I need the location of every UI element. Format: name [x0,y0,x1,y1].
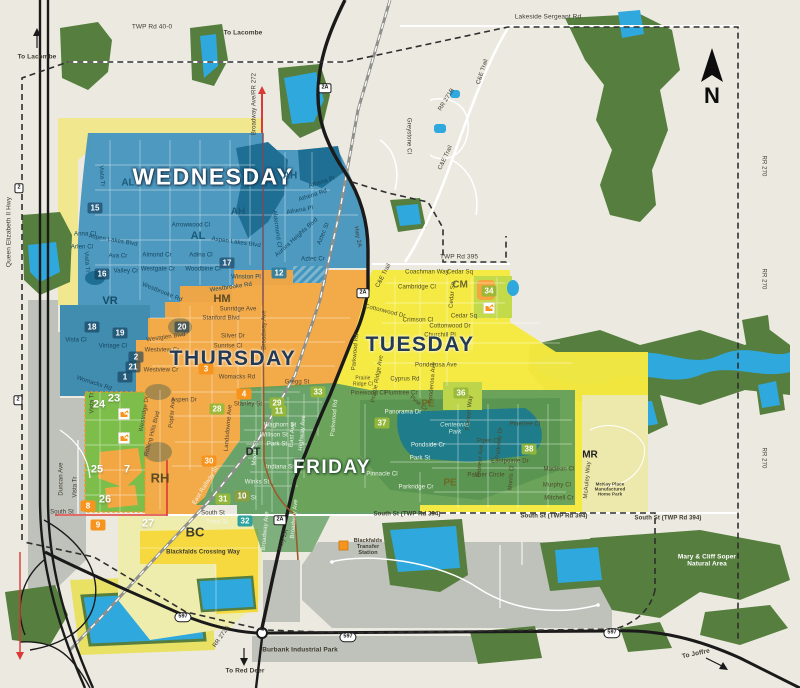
road-label: RR 270 [760,156,767,177]
road-label: RR 271B [438,88,457,113]
road-label: Westglen Blvd [146,332,186,344]
zone-number-badge: 7 [120,464,135,475]
road-label: Vista Cl [65,338,86,345]
zone-number-badge: 3 [199,364,214,375]
zone-number-badge: 9 [91,520,106,531]
road-label: C&E Trail [437,145,454,172]
zone-number-badge: 11 [272,406,287,417]
road-label: Stanford Blvd [202,316,239,323]
road-label: Arlen Cl [71,245,93,252]
zone-number-badge: 18 [85,322,100,333]
road-label: Pioneer Way [465,395,475,431]
road-label: Cedar Sq [447,270,473,277]
road-label: Morris Cl [508,465,517,490]
road-label: Panorama Dr [385,410,422,417]
neighborhood-code: AL [191,230,206,242]
road-label: Landsdowne Ave [224,404,235,451]
road-label: Vista Tr [90,392,97,413]
zone-number-badge: 8 [81,501,96,512]
zone-number-badge: 16 [95,269,110,280]
zone-number-badge: 36 [454,388,469,399]
neighborhood-code: PE [443,478,456,489]
highway-shield: 597 [603,628,620,638]
road-label: Blackfalds Crossing Way [166,550,240,557]
road-label: Cedar Sq [449,282,458,309]
road-label: Crimson Cl [403,318,434,325]
road-label: Coachman Way [405,270,449,277]
zone-number-badge: 28 [210,404,225,415]
road-label: Pinetree Cl [510,422,541,429]
zone-number-badge: 21 [126,362,141,373]
road-label: Winston Pl [231,275,261,282]
road-label: Parkridge Cr [399,485,434,492]
road-label: Duncan Ave [59,462,66,495]
road-label: South St (TWP Rd 394) [521,514,588,521]
road-label: Aztec St [317,222,332,246]
road-label: Eastpointe Dr [491,459,529,466]
road-label: Broadway Ave/RR 272 [252,73,259,135]
road-label: Athena Pl [286,205,314,216]
poi-label: Blackfalds Transfer Station [354,538,383,556]
direction-label: To Joffre [681,648,710,661]
road-label: Ponderosa Ave [415,363,457,370]
road-label: Westbrooke Rd [141,282,183,304]
road-label: Westview Cr [144,368,179,375]
neighborhood-code: PE [421,399,434,410]
zone-number-badge: 24 [92,399,107,410]
road-label: Aspen Lakes Blvd [88,233,138,248]
road-label: TWP Rd 40-0 [132,23,172,30]
road-label: Aspen Lakes Blvd [211,236,261,250]
road-label: Sunridge Ave [220,307,257,314]
road-label: Piper Cl [477,439,499,446]
highway-shield: 2 [14,183,23,193]
natural-area-label: Mary & Cliff Soper Natural Area [678,554,736,569]
road-label: Park St [267,442,287,449]
highway-shield: 2A [356,288,369,298]
zone-number-badge: 37 [375,418,390,429]
zone-number-badge: 34 [482,286,497,297]
road-label: Athena Rd [298,188,328,203]
zone-number-badge: 31 [216,494,231,505]
road-label: Ava Cr [109,254,128,261]
area-label: Burbank Industrial Park [262,646,338,653]
road-label: Mitchell Cr [544,496,573,503]
highway-shield: 2 [13,395,22,405]
zone-number-badge: 32 [238,516,253,527]
zone-number-badge: 30 [202,456,217,467]
highway-shield: 597 [339,632,356,642]
road-label: Parkway Dr [495,427,504,459]
road-label: Cambridge Cl [398,285,436,292]
zone-number-badge: 10 [235,491,250,502]
road-label: Parkwood Rd [351,333,361,371]
road-label: Poplar Ave [168,398,177,428]
road-label: Pine Cr [408,395,428,413]
road-label: South St [201,511,225,518]
road-label: Stanley St [234,402,262,409]
road-label: Valley Cr [114,269,139,276]
road-label: Westgate Cr [141,267,175,274]
zone-number-badge: 29 [270,398,285,409]
road-label: Hwy 2A [278,529,291,551]
road-label: Trout St [206,520,228,527]
zone-number-badge: 15 [88,203,103,214]
road-label: Sunrise Cl [214,344,243,351]
zone-number-badge: 25 [90,464,105,475]
road-label: Indiana St [266,465,294,472]
road-label: Westview Cr [145,348,180,355]
day-zone-label: TUESDAY [366,333,475,357]
road-label: Waghorn St [264,423,296,430]
neighborhood-code: AH [231,207,245,218]
zone-number-badge: 1 [118,372,133,383]
road-label: Parkwood Rd [330,399,340,437]
road-label: Plumtree Cr [384,391,417,398]
highway-shield: 2A [273,515,286,525]
road-label: Westridge Dr [139,396,152,433]
area-label: McKay Place Manufactured Home Park [595,481,626,496]
road-label: Maclean Cl [543,467,574,474]
road-label: South St (TWP Rd 394) [374,512,441,519]
neighborhood-code: CM [452,280,468,291]
road-label: Pinewood Cl [351,391,386,398]
road-label: Vista Tr [97,165,106,187]
neighborhood-code: AL [121,178,134,189]
road-label: Pioneer Ave [476,444,486,478]
neighborhood-code: HM [213,293,230,305]
zone-number-badge: 17 [220,258,235,269]
collection-zone-map: N TWP Rd 40-0To LacombeTo LacombeBroadwa… [0,0,800,688]
road-label: Womacks Rd [76,375,113,393]
road-label: Moore St [252,440,261,466]
road-label: Hwy 2A [352,226,362,248]
road-label: East Ave [289,423,298,448]
zone-number-badge: 20 [175,322,190,333]
road-label: South St (TWP Rd 394) [635,516,702,523]
road-label: Lakeside Sergeant Rd [515,13,581,20]
road-label: McAuley Way [583,461,593,499]
direction-label: To Lacombe [224,29,263,36]
road-label: Prairie Ridge Ave [371,355,386,403]
road-label: Pinnacle Cl [366,472,397,479]
neighborhood-code: VR [102,295,117,307]
direction-label: To Red Deer [226,667,265,674]
road-label: RR 270 [760,448,767,469]
road-label: Cyprus Rd [390,377,419,384]
zone-number-badge: 27 [141,518,156,529]
road-label: Highway Ave [298,415,308,451]
road-label: Queen Elizabeth II Hwy [5,197,12,267]
road-label: Aspen Dr [171,398,197,405]
road-label: TWP Rd 395 [440,253,478,260]
road-label: Rolling Hills Blvd [144,411,163,458]
park-label: Centennial Park [440,422,470,435]
road-label: Womacks Rd [219,375,256,382]
road-label: Vista Tr [73,476,80,497]
road-label: Park St [410,456,430,463]
road-label: Athena Pl [308,176,336,191]
road-label: Westbrooke Rd [209,282,252,295]
road-label: East Railway St [192,466,221,506]
neighborhood-code: RH [151,471,170,486]
road-label: Silver Dr [221,334,245,341]
neighborhood-code: DT [246,446,261,458]
road-label: Churchill Pl [424,333,456,340]
neighborhood-code: MR [582,450,598,461]
road-label: Cedar Sq [451,314,477,321]
neighborhood-code: AH [283,171,297,182]
road-label: RR 270 [760,269,767,290]
road-label: Ponderosa Ave [428,362,438,404]
neighborhood-code: BC [186,525,205,540]
road-label: Arrowwood Cl [172,223,211,230]
road-label: Cottonwood Dr [429,324,470,331]
road-label: C&E Trail [375,263,393,289]
zone-number-badge: 12 [272,268,287,279]
road-label: Vintage Cl [99,344,128,351]
road-label: Anna Cl [74,232,96,239]
label-layer: N TWP Rd 40-0To LacombeTo LacombeBroadwa… [0,0,800,688]
road-label: Broadway Ave [262,310,269,349]
road-label: Willson St [260,433,288,440]
road-label: Almond Cr [142,253,171,260]
road-label: Shull St [235,496,256,503]
road-label: South St [50,510,74,517]
day-zone-label: FRIDAY [293,457,371,479]
road-label: Murphy Cl [543,483,571,490]
day-zone-label: WEDNESDAY [133,164,294,191]
zone-number-badge: 26 [98,494,113,505]
zone-number-badge: 4 [237,389,252,400]
road-label: Aurora Heights Blvd [274,217,320,259]
road-label: Aztec Cr [301,257,325,264]
road-label: Greystone Cl [405,118,412,154]
road-label: Broadway Ave [261,511,271,551]
zone-number-badge: 23 [107,393,122,404]
day-zone-label: THURSDAY [170,347,297,371]
road-label: Palmer Circle [467,473,504,480]
zone-number-badge: 19 [113,328,128,339]
highway-shield: 597 [174,612,191,622]
road-label: RR 272A [212,625,232,649]
road-label: Broadway Ave [290,499,300,539]
road-label: Cottonwood Dr [364,304,406,321]
road-label: Winks St [245,480,269,487]
road-label: Prairie Ridge Cl [353,376,373,387]
road-label: Woodbine Cl [185,267,220,274]
road-label: Pondside Cr [411,443,445,450]
road-label: Adina Cl [189,253,212,260]
zone-number-badge: 33 [311,387,326,398]
zone-number-badge: 38 [522,444,537,455]
road-label: Gregg St [285,380,310,387]
road-label: Aldermond Cl [270,210,282,248]
compass-n-label: N [704,83,720,109]
road-label: Vista Tr [82,251,91,273]
road-label: C&E Trail [476,58,491,85]
zone-number-badge: 2 [129,352,144,363]
highway-shield: 2A [318,83,331,93]
direction-label: To Lacombe [18,53,57,60]
